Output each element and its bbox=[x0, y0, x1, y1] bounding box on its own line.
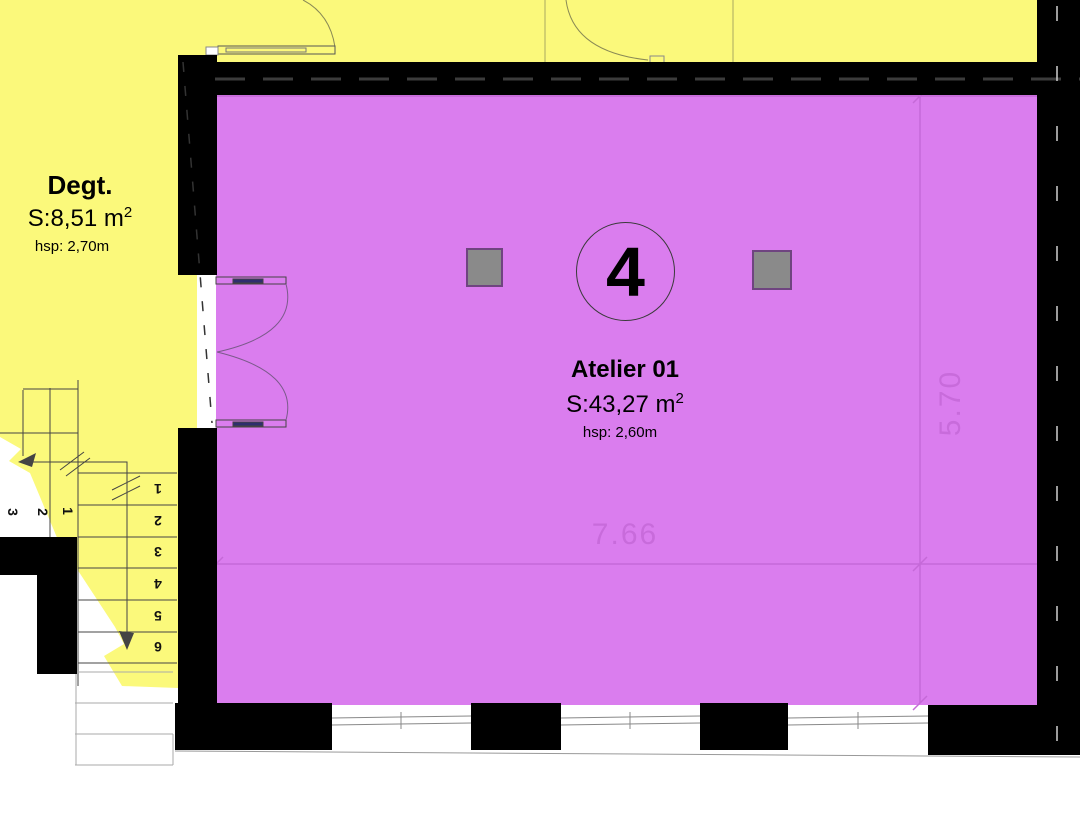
wall-left-lower bbox=[178, 428, 217, 703]
door-threshold bbox=[206, 47, 218, 55]
dimension-width-label: 7.66 bbox=[555, 518, 695, 552]
degt-area-sup: 2 bbox=[124, 204, 132, 221]
column-right bbox=[752, 250, 792, 290]
stair-step-lower-1: 1 bbox=[148, 479, 168, 499]
degt-room-hsp: hsp: 2,70m bbox=[12, 238, 132, 255]
atelier-room-name: Atelier 01 bbox=[525, 356, 725, 384]
wall-bottom-pier-2 bbox=[471, 703, 561, 750]
stair-step-upper-1: 1 bbox=[58, 501, 78, 521]
floor-plan: Degt. S:8,51 m2 hsp: 2,70m 4 Atelier 01 … bbox=[0, 0, 1080, 839]
room-number-circle: 4 bbox=[576, 222, 675, 321]
stair-step-lower-5: 5 bbox=[148, 606, 168, 626]
stair-step-lower-2: 2 bbox=[148, 511, 168, 531]
degt-area-value: S:8,51 m bbox=[28, 205, 124, 232]
atelier-room-area: S:43,27 m2 bbox=[525, 390, 725, 419]
dimension-depth-label: 5.70 bbox=[934, 333, 968, 473]
room-number: 4 bbox=[606, 237, 645, 307]
windows bbox=[332, 712, 928, 729]
stair-step-lower-6: 6 bbox=[148, 637, 168, 657]
wall-bottom-pier-1 bbox=[175, 703, 332, 750]
atelier-room-hsp: hsp: 2,60m bbox=[520, 424, 720, 441]
door-stop bbox=[650, 56, 664, 63]
atelier-area-value: S:43,27 m bbox=[566, 391, 675, 418]
plan-drawing bbox=[0, 0, 1080, 839]
wall-right bbox=[1037, 0, 1080, 755]
stair-wall-vertical bbox=[37, 575, 77, 674]
stair-step-upper-3: 3 bbox=[3, 502, 23, 522]
stair-step-lower-4: 4 bbox=[148, 574, 168, 594]
degt-room-area: S:8,51 m2 bbox=[10, 204, 150, 233]
atelier-area-sup: 2 bbox=[676, 390, 684, 407]
wall-bottom-pier-3 bbox=[700, 703, 788, 750]
degt-room-name: Degt. bbox=[20, 170, 140, 201]
column-left bbox=[466, 248, 503, 287]
stair-step-upper-2: 2 bbox=[33, 502, 53, 522]
wall-left-upper bbox=[178, 55, 217, 275]
stair-step-lower-3: 3 bbox=[148, 542, 168, 562]
stair-wall-horizontal bbox=[0, 537, 77, 575]
